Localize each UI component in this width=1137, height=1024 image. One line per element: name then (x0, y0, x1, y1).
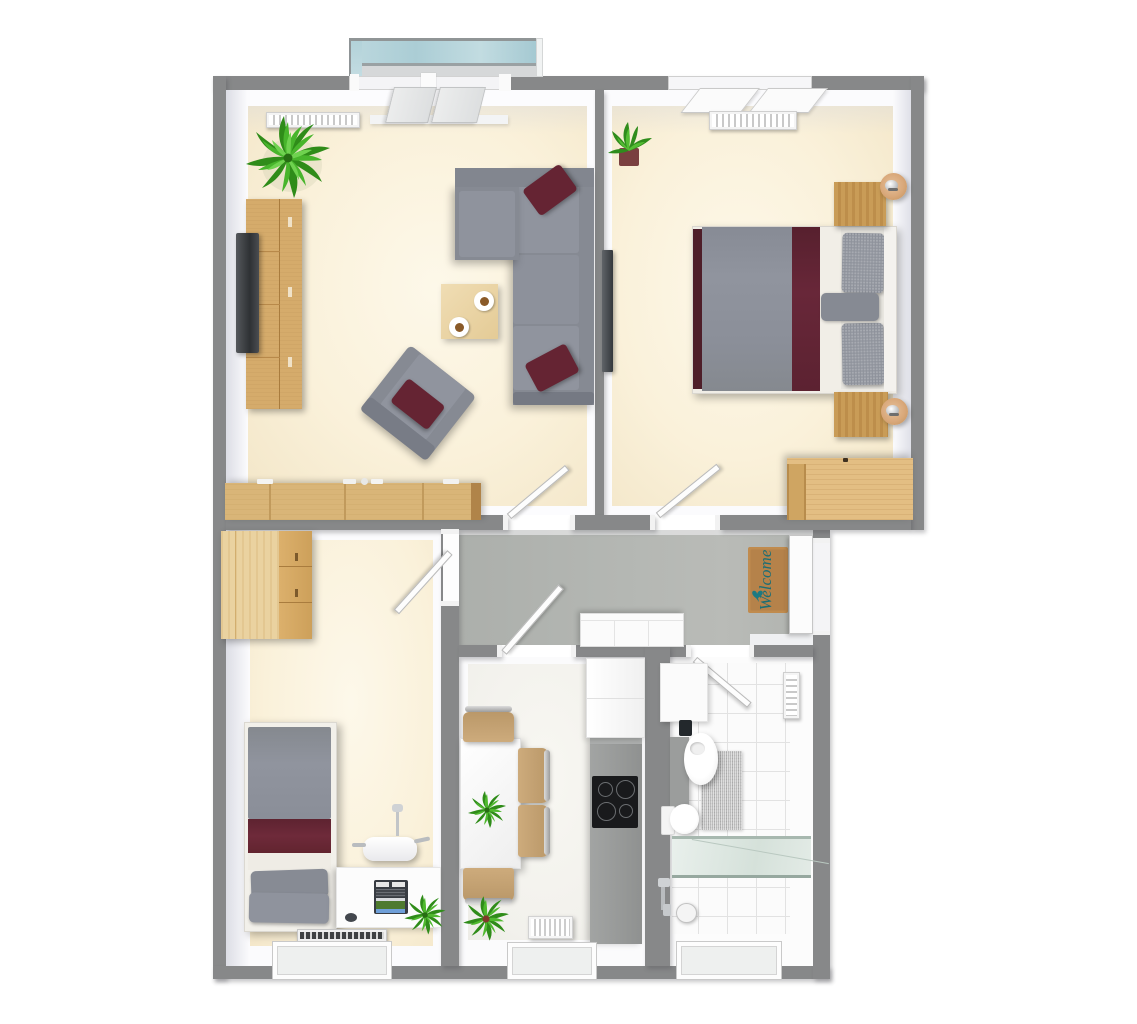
svg-text:Welcome: Welcome (756, 549, 775, 610)
